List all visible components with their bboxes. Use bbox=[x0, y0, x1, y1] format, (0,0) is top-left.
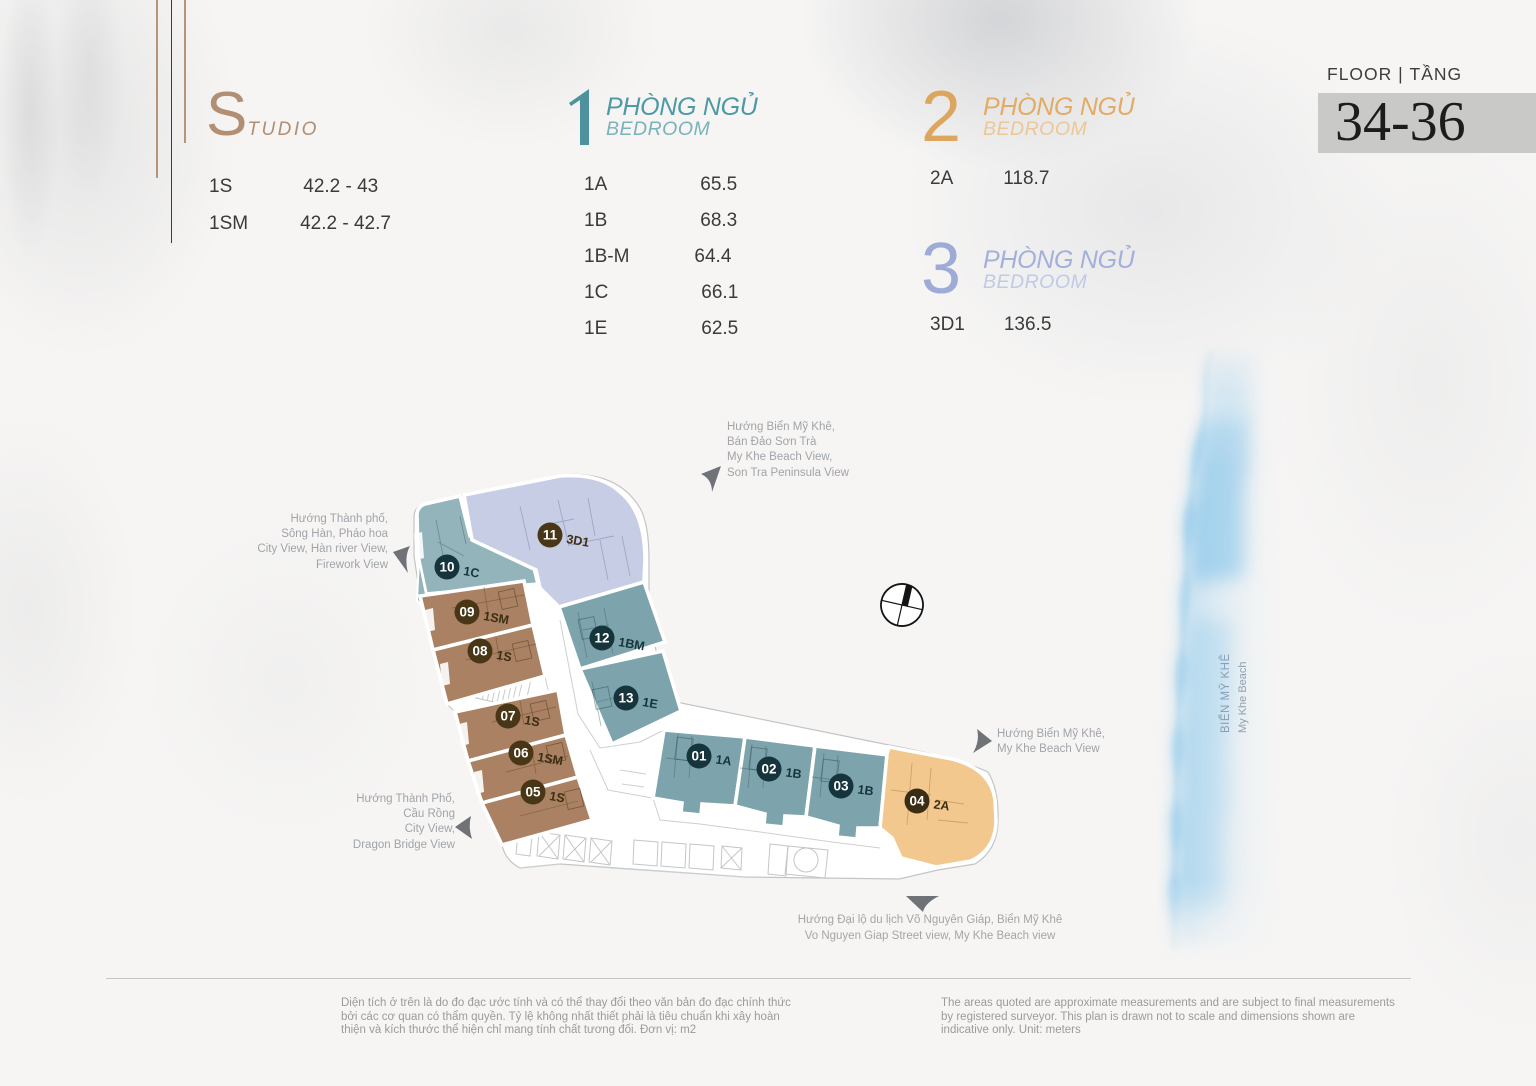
svg-text:1S: 1S bbox=[523, 713, 540, 729]
svg-text:08: 08 bbox=[472, 644, 488, 659]
svg-text:09: 09 bbox=[459, 605, 474, 620]
svg-text:07: 07 bbox=[500, 709, 515, 724]
svg-text:1S: 1S bbox=[548, 789, 565, 805]
svg-text:05: 05 bbox=[525, 785, 541, 800]
svg-text:10: 10 bbox=[439, 560, 454, 575]
svg-text:01: 01 bbox=[691, 749, 707, 764]
svg-text:02: 02 bbox=[761, 762, 776, 777]
svg-text:11: 11 bbox=[543, 528, 558, 543]
svg-text:1B: 1B bbox=[785, 765, 803, 781]
svg-text:12: 12 bbox=[594, 631, 609, 646]
svg-text:03: 03 bbox=[833, 779, 849, 794]
svg-text:1A: 1A bbox=[715, 752, 733, 768]
svg-text:2A: 2A bbox=[933, 797, 951, 813]
svg-text:1E: 1E bbox=[641, 695, 658, 711]
svg-text:04: 04 bbox=[909, 794, 925, 809]
svg-text:06: 06 bbox=[513, 746, 529, 761]
svg-text:1C: 1C bbox=[462, 564, 480, 581]
svg-text:1S: 1S bbox=[495, 648, 512, 664]
svg-text:13: 13 bbox=[618, 691, 634, 706]
svg-text:1B: 1B bbox=[857, 782, 875, 798]
